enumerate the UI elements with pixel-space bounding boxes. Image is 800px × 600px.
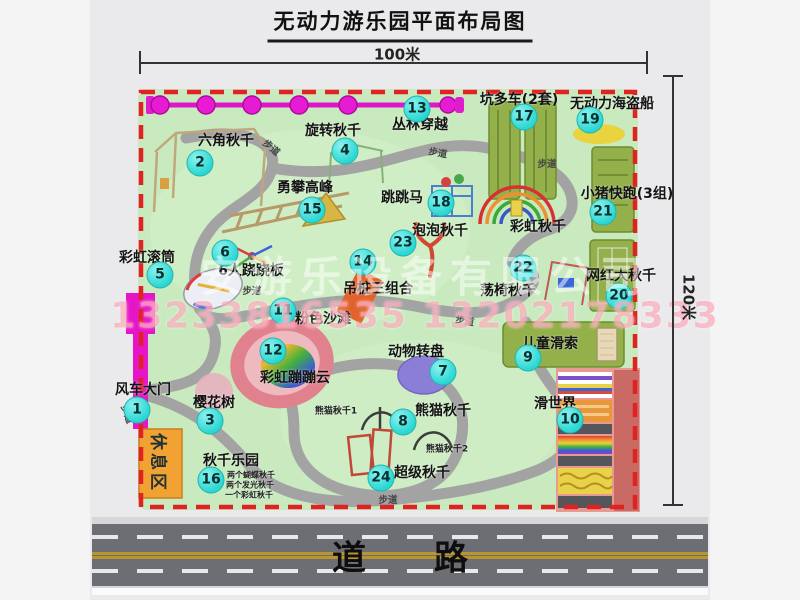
walkway-label-1: 步道 [427, 143, 448, 160]
attraction-badge-15: 15 [299, 197, 326, 224]
height-dimension-line [672, 76, 674, 506]
width-dim-tick-left [139, 51, 141, 74]
attraction-badge-2: 2 [187, 150, 214, 177]
width-dimension-label: 100米 [374, 44, 420, 65]
page-title: 无动力游乐园平面布局图 [268, 6, 533, 43]
height-dim-tick-top [663, 75, 683, 77]
attraction-badge-10: 10 [557, 407, 584, 434]
attraction-label-4: 旋转秋千 [305, 120, 361, 140]
attraction-badge-24: 24 [368, 465, 395, 492]
attraction-badge-9: 9 [515, 345, 542, 372]
attraction-badge-4: 4 [332, 138, 359, 165]
attraction-badge-5: 5 [147, 262, 174, 289]
attraction-badge-18: 18 [428, 190, 455, 217]
attraction-badge-17: 17 [511, 104, 538, 131]
extra-label-0: 彩虹秋千 [510, 216, 566, 236]
attraction-badge-1: 1 [124, 397, 151, 424]
walkway-label-6: 步道 [378, 492, 397, 506]
attraction-badge-21: 21 [590, 199, 617, 226]
attraction-label-7: 动物转盘 [388, 341, 444, 361]
watermark-phone: 13233816535 13202178333 [110, 296, 720, 337]
attraction-badge-16: 16 [198, 467, 225, 494]
attraction-badge-8: 8 [390, 409, 417, 436]
width-dim-tick-right [646, 51, 648, 74]
attraction-label-18: 跳跳马 [381, 187, 423, 207]
attraction-label-2: 六角秋千 [198, 130, 254, 150]
attraction-label-1: 风车大门 [115, 379, 171, 399]
note-4: 一个彩虹秋千 [225, 490, 273, 501]
attraction-label-24: 超级秋千 [394, 462, 450, 482]
attraction-badge-13: 13 [404, 96, 431, 123]
attraction-label-8: 熊猫秋千 [415, 400, 471, 420]
attraction-label-12: 彩虹蹦蹦云 [260, 367, 330, 387]
attraction-badge-7: 7 [430, 359, 457, 386]
rest-area-label: 休息区 [148, 433, 173, 493]
attraction-label-23: 泡泡秋千 [412, 220, 468, 240]
attraction-badge-12: 12 [260, 338, 287, 365]
note-0: 熊猫秋千1 [315, 404, 357, 417]
attraction-badge-3: 3 [197, 408, 224, 435]
height-dimension-label: 120米 [679, 274, 700, 320]
screenshot-root: 无动力游乐园平面布局图 100米 120米 休息区 安游乐设备有限公司 1323… [0, 0, 800, 600]
attraction-badge-19: 19 [577, 107, 604, 134]
note-1: 熊猫秋千2 [426, 442, 468, 455]
height-dim-tick-bottom [663, 504, 683, 506]
slide-world-icon [556, 368, 640, 512]
walkway-label-2: 步道 [537, 156, 556, 170]
attraction-label-15: 勇攀高峰 [277, 177, 333, 197]
